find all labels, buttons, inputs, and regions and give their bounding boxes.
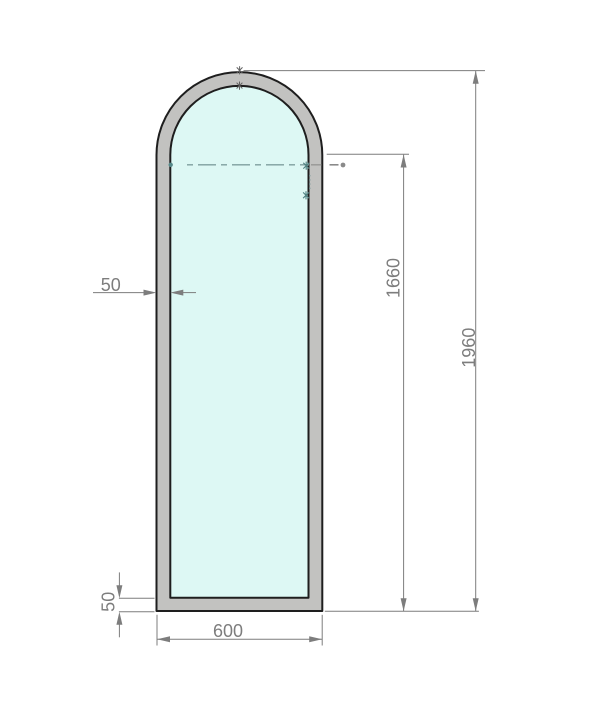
svg-text:50: 50 [101,275,121,295]
svg-text:1960: 1960 [459,328,479,368]
svg-text:600: 600 [213,621,243,641]
svg-text:50: 50 [98,592,118,612]
svg-text:1660: 1660 [384,258,404,298]
